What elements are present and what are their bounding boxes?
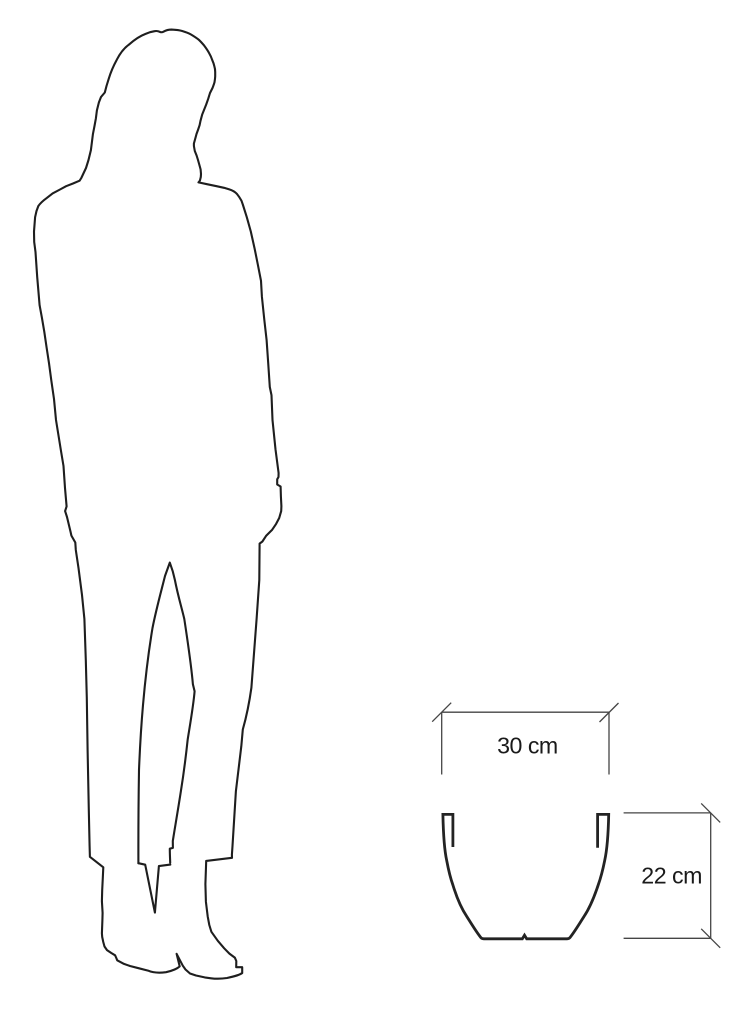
svg-text:30 cm: 30 cm [497,732,558,758]
svg-text:22 cm: 22 cm [641,863,702,889]
